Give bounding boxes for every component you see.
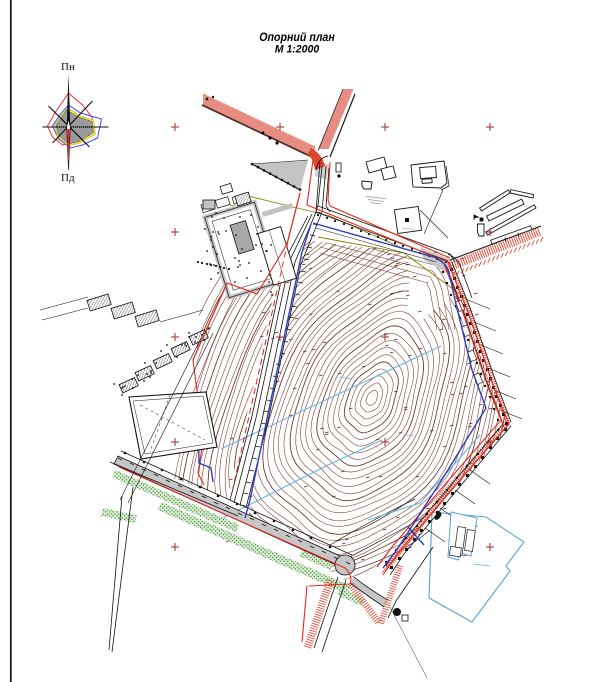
svg-text:Пд: Пд (61, 172, 75, 184)
svg-text:Пн: Пн (61, 61, 75, 73)
svg-text:Опорний план: Опорний план (259, 30, 335, 44)
svg-text:М 1:2000: М 1:2000 (275, 44, 320, 56)
